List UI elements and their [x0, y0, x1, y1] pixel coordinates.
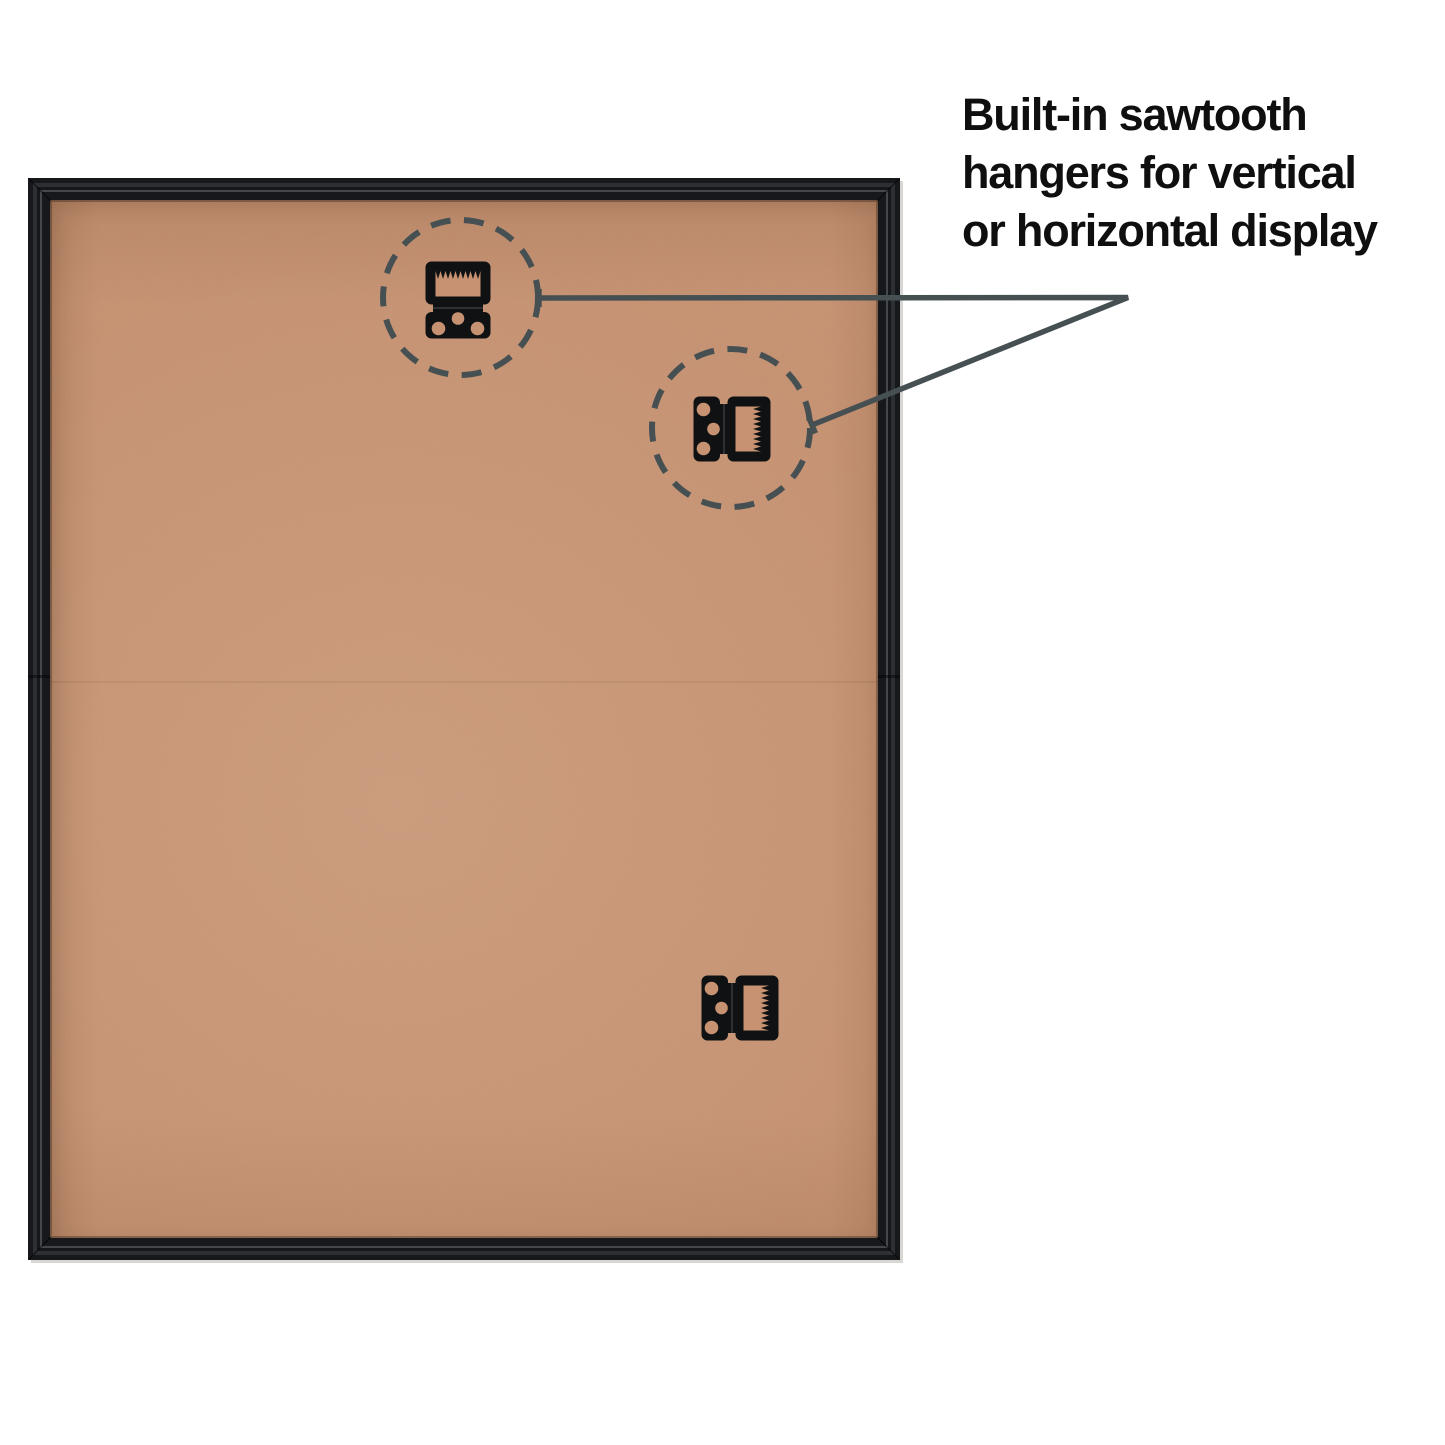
callout-line-2: hangers for vertical [962, 144, 1442, 202]
sawtooth-hanger-icon-bottom [700, 973, 780, 1043]
backing-seam [50, 681, 878, 683]
sawtooth-hanger-icon-right [692, 394, 772, 464]
callout-text: Built-in sawtooth hangers for vertical o… [962, 86, 1442, 260]
callout-line-1: Built-in sawtooth [962, 86, 1442, 144]
callout-line-3: or horizontal display [962, 202, 1442, 260]
product-feature-image: Built-in sawtooth hangers for vertical o… [0, 0, 1445, 1445]
sawtooth-hanger-icon-top [423, 260, 493, 340]
mdf-texture [50, 200, 878, 1238]
mdf-backing-board [50, 200, 878, 1238]
picture-frame-back [28, 178, 900, 1260]
